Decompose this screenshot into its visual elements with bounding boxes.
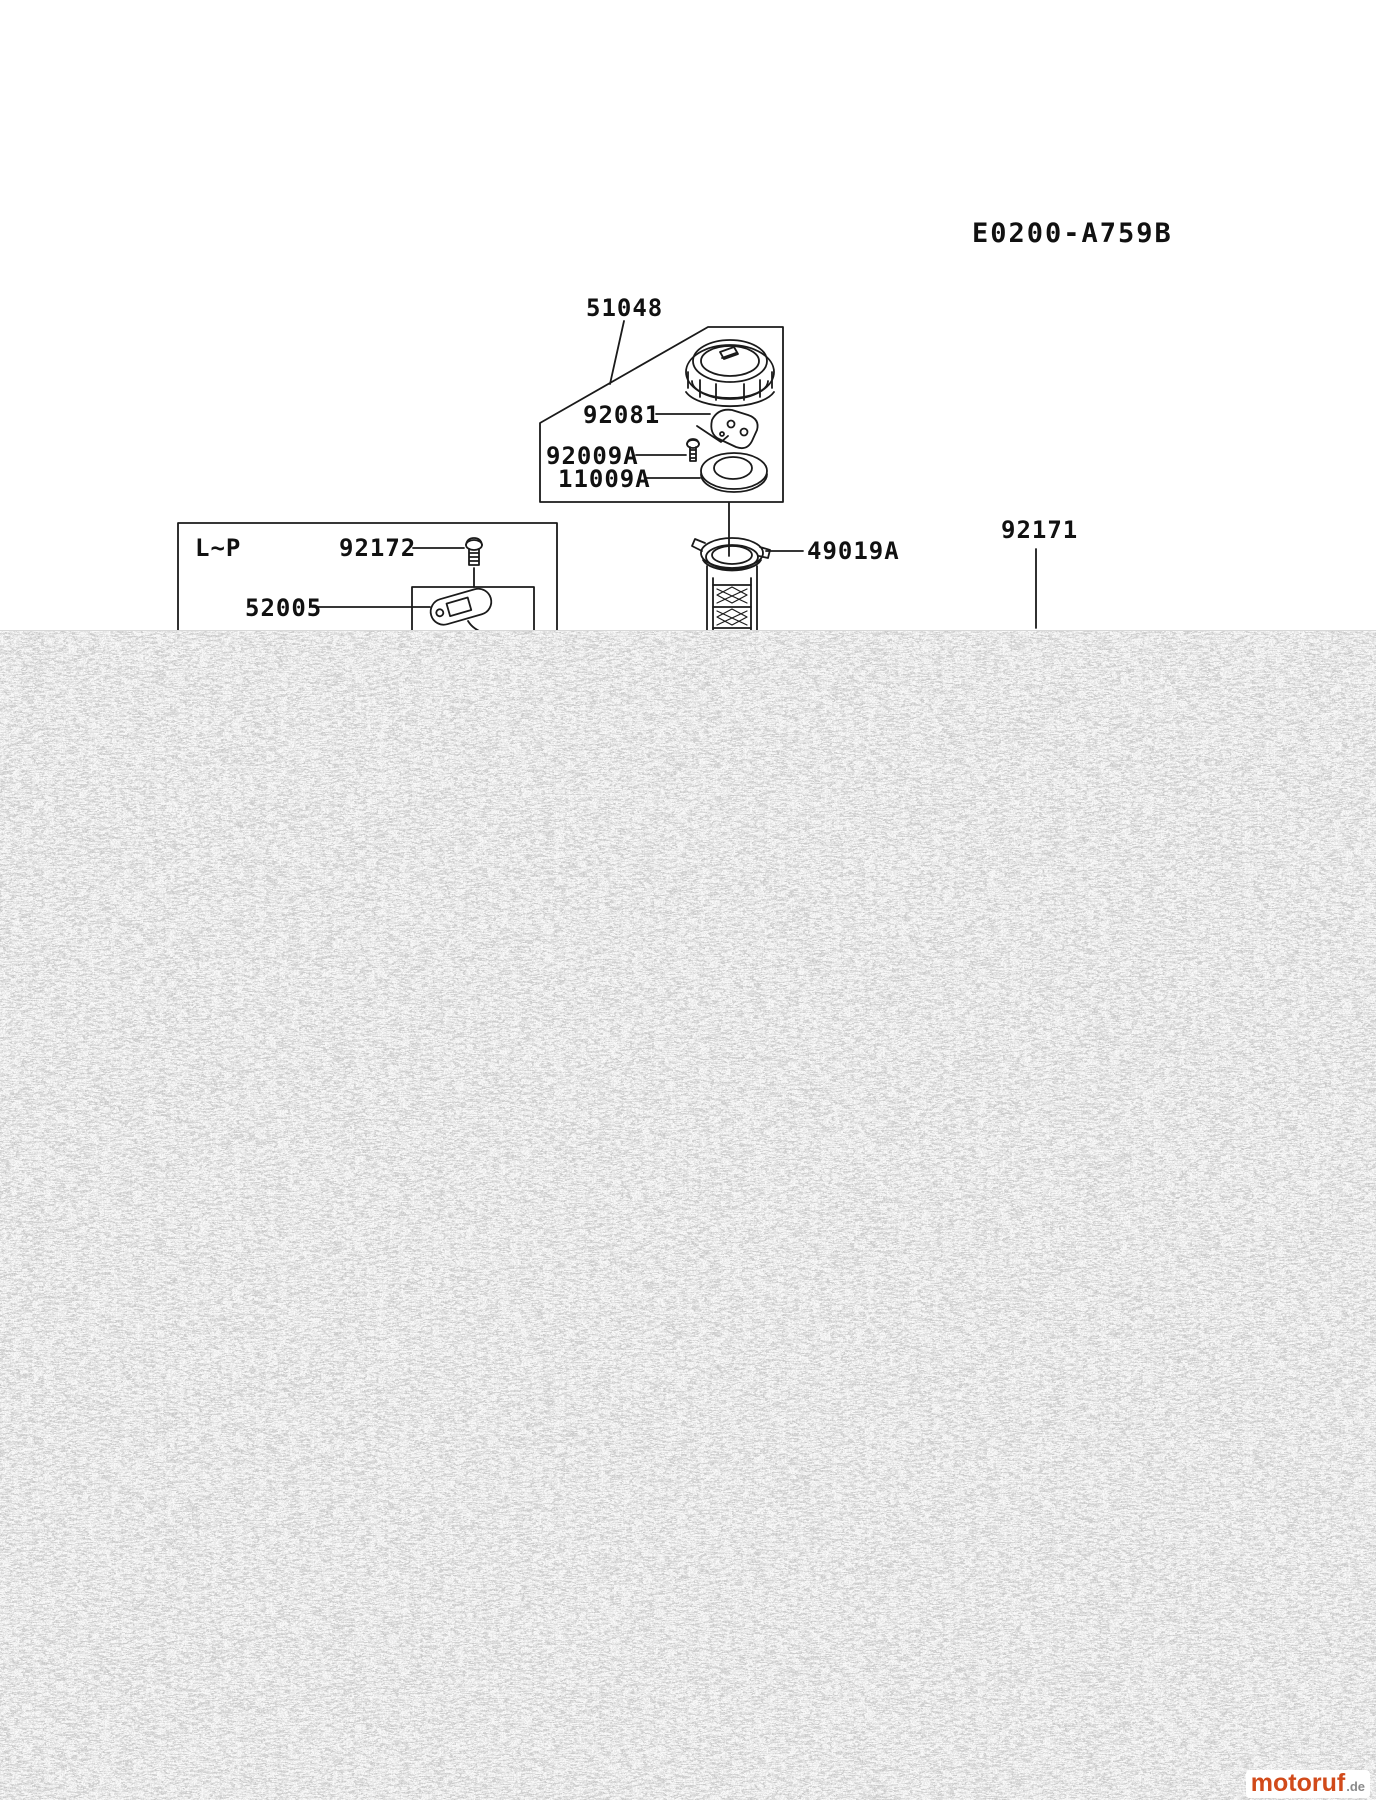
- part-number-fuel-strainer: 49019A: [807, 539, 900, 563]
- parts-diagram-page: E0200-A759B 51048 92081 92009A 11009A L~…: [0, 0, 1376, 1800]
- spec-range-label: L~P: [195, 536, 241, 560]
- noise-texture: [0, 631, 1376, 1800]
- watermark: motoruf.de: [1246, 1770, 1370, 1798]
- fuel-cap-drawing: [686, 340, 774, 406]
- watermark-tld: .de: [1346, 1779, 1365, 1794]
- part-number-fuel-cap: 51048: [586, 296, 663, 320]
- gauge-screw-drawing: [413, 538, 482, 587]
- cap-screw-drawing: [636, 439, 699, 461]
- part-number-fuel-tank: 92171: [1001, 518, 1078, 542]
- part-number-cap-gasket: 92081: [583, 403, 660, 427]
- leader-line-51048: [610, 321, 624, 384]
- fuel-gauge-drawing: [312, 586, 506, 630]
- watermark-brand: motoruf: [1251, 1771, 1345, 1796]
- part-number-cap-washer: 11009A: [558, 467, 651, 491]
- cap-gasket-drawing: [656, 410, 758, 448]
- part-number-fuel-gauge: 52005: [245, 596, 322, 620]
- paper-noise-region: [0, 630, 1376, 1800]
- drawing-number: E0200-A759B: [972, 220, 1173, 247]
- cap-washer-drawing: [646, 453, 767, 492]
- fuel-strainer-drawing: [692, 538, 803, 630]
- part-number-gauge-screw: 92172: [339, 536, 416, 560]
